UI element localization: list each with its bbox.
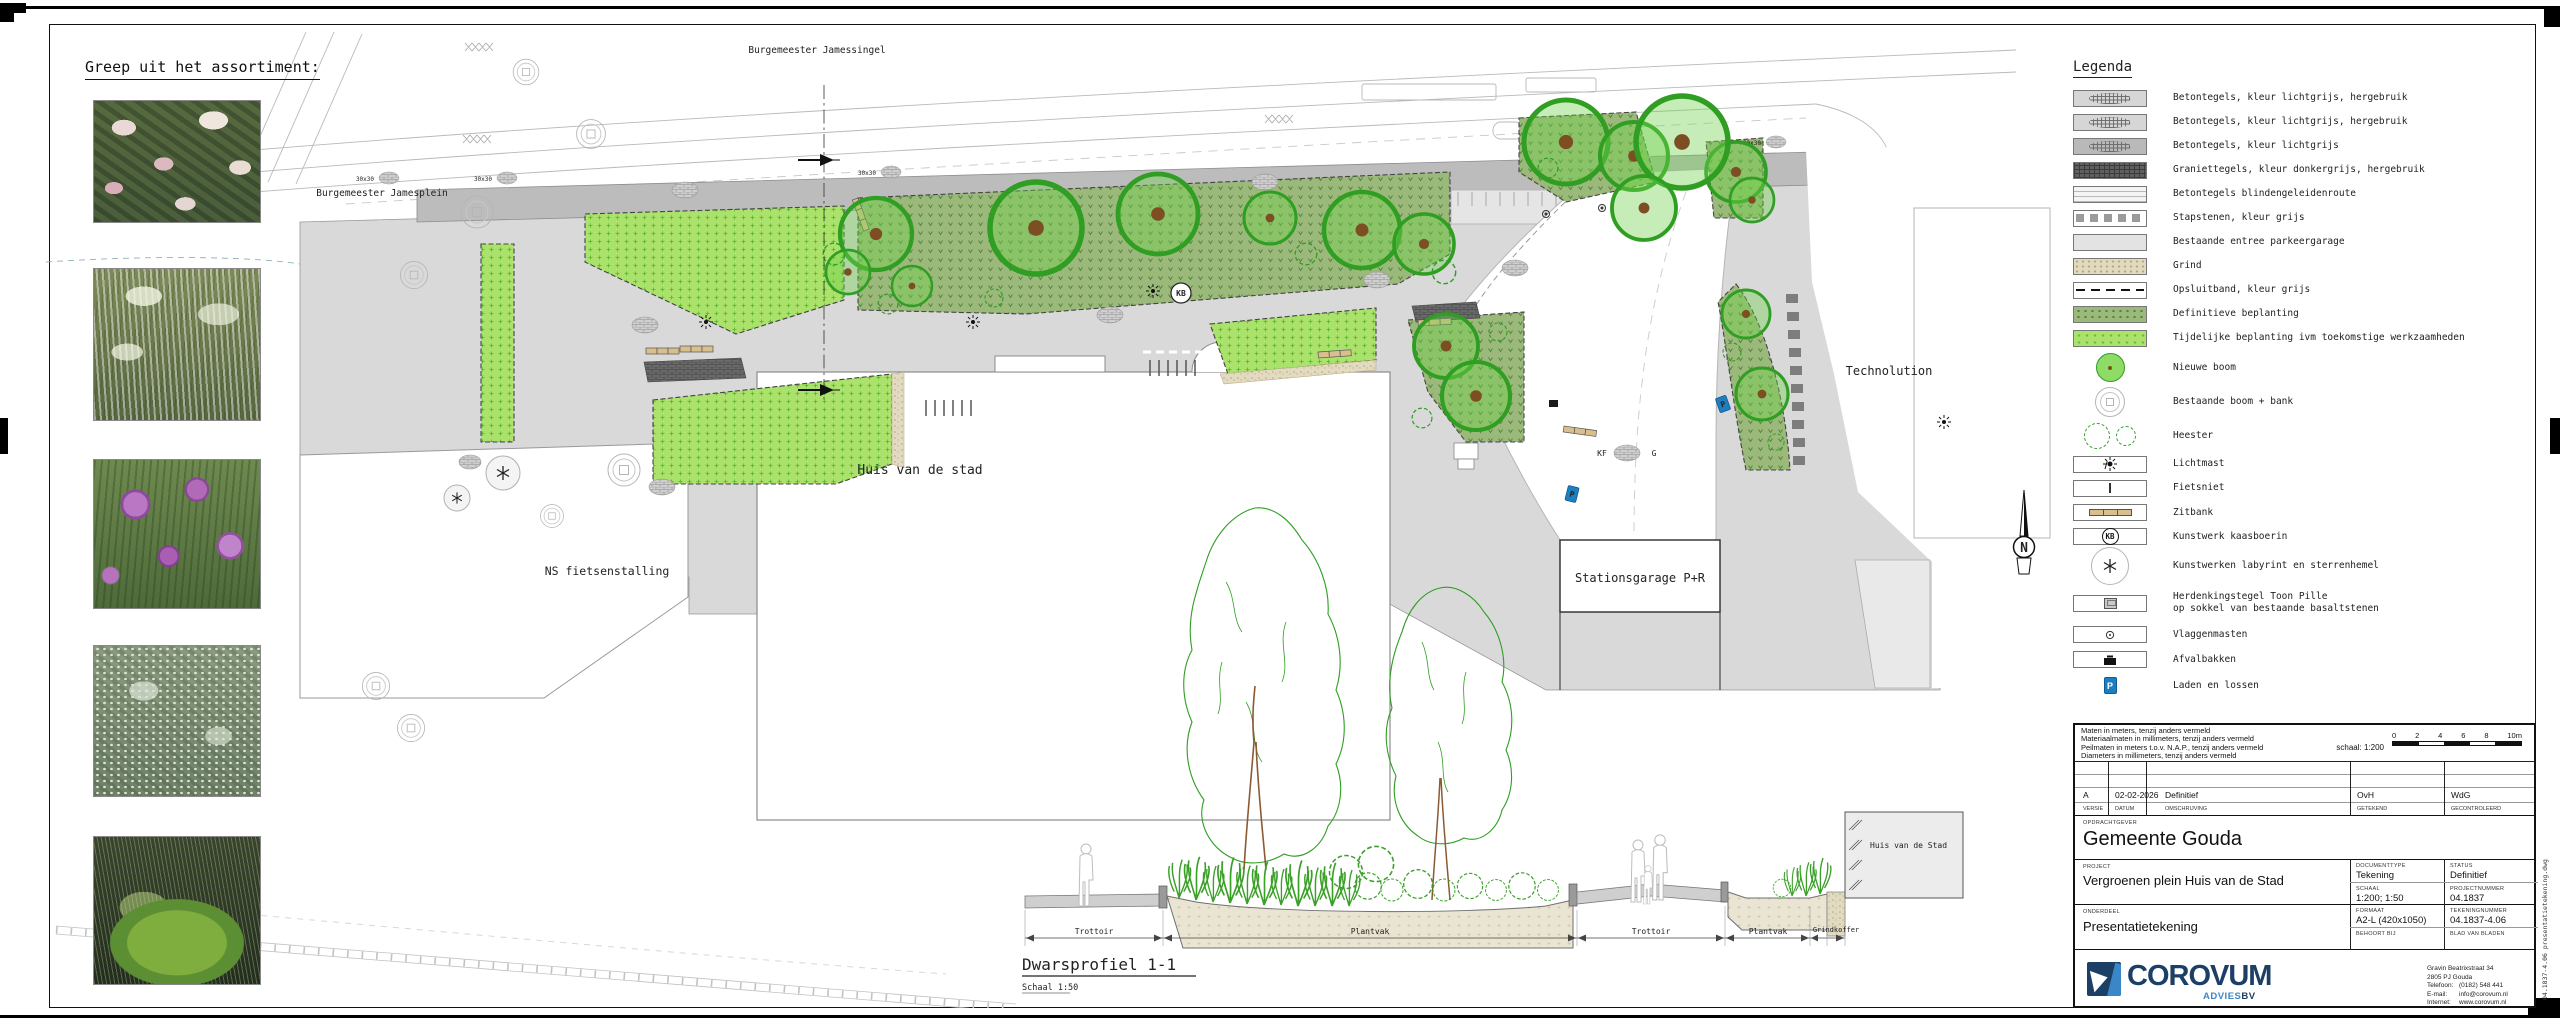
artwork-kb-box-icon: KB: [2073, 528, 2147, 545]
plant-photo-5: [93, 836, 261, 985]
svg-text:Grindkoffer: Grindkoffer: [1813, 926, 1859, 934]
bike-parking-label: NS fietsenstalling: [545, 564, 670, 578]
garage-label: Stationsgarage P+R: [1575, 571, 1706, 585]
svg-text:N: N: [2020, 541, 2028, 556]
planting-temp-strip: [481, 244, 514, 442]
crop-mark-tr: [2544, 9, 2560, 27]
svg-text:KB: KB: [1176, 289, 1186, 298]
project-name: Vergroenen plein Huis van de Stad: [2083, 873, 2284, 888]
title-block: Maten in meters, tenzij anders vermeld M…: [2073, 723, 2536, 1008]
new-tree-icon: [2096, 353, 2125, 382]
company-address: Gravin Beatrixstraat 34 2805 PJ Gouda Te…: [2427, 965, 2508, 1008]
tiles-lightgray-2-icon: [2073, 114, 2147, 131]
legend-item: Kunstwerken labyrint en sterrenhemel: [2073, 548, 2533, 584]
legend-item: Afvalbakken: [2073, 647, 2533, 672]
technolution-label: Technolution: [1846, 364, 1933, 378]
legend-title: Legenda: [2073, 59, 2132, 78]
building-label: Huis van de stad: [857, 463, 982, 478]
g-label: G: [1652, 449, 1657, 458]
legend-item: Betontegels, kleur lichtgrijs, hergebrui…: [2073, 110, 2533, 134]
legend-item: Herdenkingstegel Toon Pille op sokkel va…: [2073, 584, 2533, 622]
scale-bar: 02 46 810m: [2392, 731, 2522, 746]
legend-item: P Laden en lossen: [2073, 672, 2533, 699]
svg-text:30x30: 30x30: [858, 170, 876, 177]
status-value: Definitief: [2450, 870, 2487, 881]
legend-item: Definitieve beplanting: [2073, 302, 2533, 326]
legend-item: KB Kunstwerk kaasboerin: [2073, 525, 2533, 548]
note-line: Diameters in millimeters, tenzij anders …: [2081, 752, 2263, 760]
client-label: OPDRACHTGEVER: [2083, 820, 2137, 826]
plan-drawing: KF G 30x30 30x30 30x30 30x30: [46, 22, 2060, 1008]
svg-text:Trottoir: Trottoir: [1632, 927, 1671, 936]
plant-photo-2: [93, 268, 261, 421]
legend-item: Tijdelijke beplanting ivm toekomstige we…: [2073, 326, 2533, 350]
tiles-darkgray-icon: [2073, 162, 2147, 179]
svg-text:30x30: 30x30: [474, 176, 492, 183]
planting-final-icon: [2073, 306, 2147, 323]
light-pole-icon: [699, 315, 713, 329]
tiles-gray-icon: [2073, 138, 2147, 155]
legend-item: Vlaggenmasten: [2073, 622, 2533, 647]
onderdeel-label: ONDERDEEL: [2083, 909, 2120, 915]
legend-item: Betontegels, kleur lichtgrijs, hergebrui…: [2073, 86, 2533, 110]
plant-photo-1: [93, 100, 261, 223]
file-name-vertical: 04.1837-4.06 presentatietekening.dwg: [2541, 750, 2549, 1000]
scale-label: schaal: 1:200: [2336, 743, 2384, 752]
flag-pole-icon: [2073, 626, 2147, 643]
shrub-icon: [2073, 423, 2147, 449]
projectnummer-value: 04.1837: [2450, 893, 2484, 904]
loading-sign-icon: P: [2104, 677, 2117, 694]
section-scale: Schaal 1:50: [1022, 983, 1078, 993]
street-left-label: Burgemeester Jamesplein: [316, 188, 448, 199]
light-pole-box-icon: [2073, 456, 2147, 473]
legend-item: Stapstenen, kleur grijs: [2073, 206, 2533, 230]
documenttype-value: Tekening: [2356, 870, 2394, 881]
section-title: Dwarsprofiel 1-1: [1022, 955, 1176, 974]
street-top-label: Burgemeester Jamessingel: [748, 45, 885, 56]
svg-text:30x30: 30x30: [356, 176, 374, 183]
road-hatch-icon: [465, 43, 493, 51]
legend-item: Heester: [2073, 419, 2533, 452]
crop-mark-right-mid: [2550, 418, 2560, 454]
legend-item: Lichtmast: [2073, 452, 2533, 476]
crop-mark-left-mid: [0, 418, 8, 454]
legend-item: Nieuwe boom: [2073, 350, 2533, 385]
legend-item: Zitbank: [2073, 500, 2533, 525]
client-name: Gemeente Gouda: [2083, 828, 2242, 851]
revision-row: A 02-02-2026 Definitief OvH WdG: [2075, 788, 2534, 803]
legend-item: Betontegels blindengeleidenroute: [2073, 182, 2533, 206]
formaat-value: A2-L (420x1050): [2356, 915, 2426, 926]
svg-text:Plantvak: Plantvak: [1749, 927, 1788, 936]
legend-item: Opsluitband, kleur grijs: [2073, 278, 2533, 302]
plant-photo-3: [93, 459, 261, 609]
stepping-stones-icon: [2073, 210, 2147, 227]
kerb-icon: [2073, 282, 2147, 299]
garage-entrance-icon: [2073, 234, 2147, 251]
onderdeel-value: Presentatietekening: [2083, 919, 2198, 934]
legend: Legenda Betontegels, kleur lichtgrijs, h…: [2073, 58, 2533, 699]
bench-icon: [2073, 504, 2147, 521]
trash-bin-box-icon: [2073, 651, 2147, 668]
existing-tree-bench-icon: [2095, 387, 2125, 417]
corovum-icon: [2087, 962, 2121, 996]
tiles-lightgray-1-icon: [2073, 90, 2147, 107]
tekeningnummer-value: 04.1837-4.06: [2450, 915, 2506, 926]
gravel-icon: [2073, 258, 2147, 275]
section-building-label: Huis van de Stad: [1870, 841, 1947, 850]
plant-photo-4: [93, 645, 261, 797]
crop-mark-tl2: [0, 13, 14, 22]
crop-mark-bottom: [0, 1015, 2560, 1018]
assortment-title: Greep uit het assortiment:: [85, 58, 320, 80]
crop-mark-tl1: [0, 3, 26, 13]
svg-text:Trottoir: Trottoir: [1075, 927, 1114, 936]
trash-bin-icon: [1549, 400, 1558, 407]
legend-item: Graniettegels, kleur donkergrijs, hergeb…: [2073, 158, 2533, 182]
legend-item: Grind: [2073, 254, 2533, 278]
schaal-value: 1:200; 1:50: [2356, 893, 2404, 904]
svg-text:Plantvak: Plantvak: [1351, 927, 1390, 936]
bench-row: [646, 348, 679, 354]
guide-tiles-icon: [2073, 186, 2147, 203]
legend-item: Bestaande entree parkeergarage: [2073, 230, 2533, 254]
legend-item: Fietsniet: [2073, 476, 2533, 500]
artwork-asterisk-icon: [2091, 547, 2129, 585]
kf-label: KF: [1597, 449, 1607, 458]
project-label: PROJECT: [2083, 864, 2111, 870]
bike-rack-icon: [2073, 480, 2147, 497]
planting-temp-icon: [2073, 330, 2147, 347]
artwork-kb-icon: KB: [1171, 283, 1191, 303]
revision-headers: VERSIE DATUM OMSCHRIJVING GETEKEND GECON…: [2075, 803, 2534, 816]
drawing-sheet: KF G 30x30 30x30 30x30 30x30: [0, 0, 2560, 1024]
memorial-tile-icon: [2073, 595, 2147, 612]
crop-mark-top: [0, 6, 2560, 9]
legend-item: Bestaande boom + bank: [2073, 385, 2533, 419]
legend-item: Betontegels, kleur lichtgrijs: [2073, 134, 2533, 158]
